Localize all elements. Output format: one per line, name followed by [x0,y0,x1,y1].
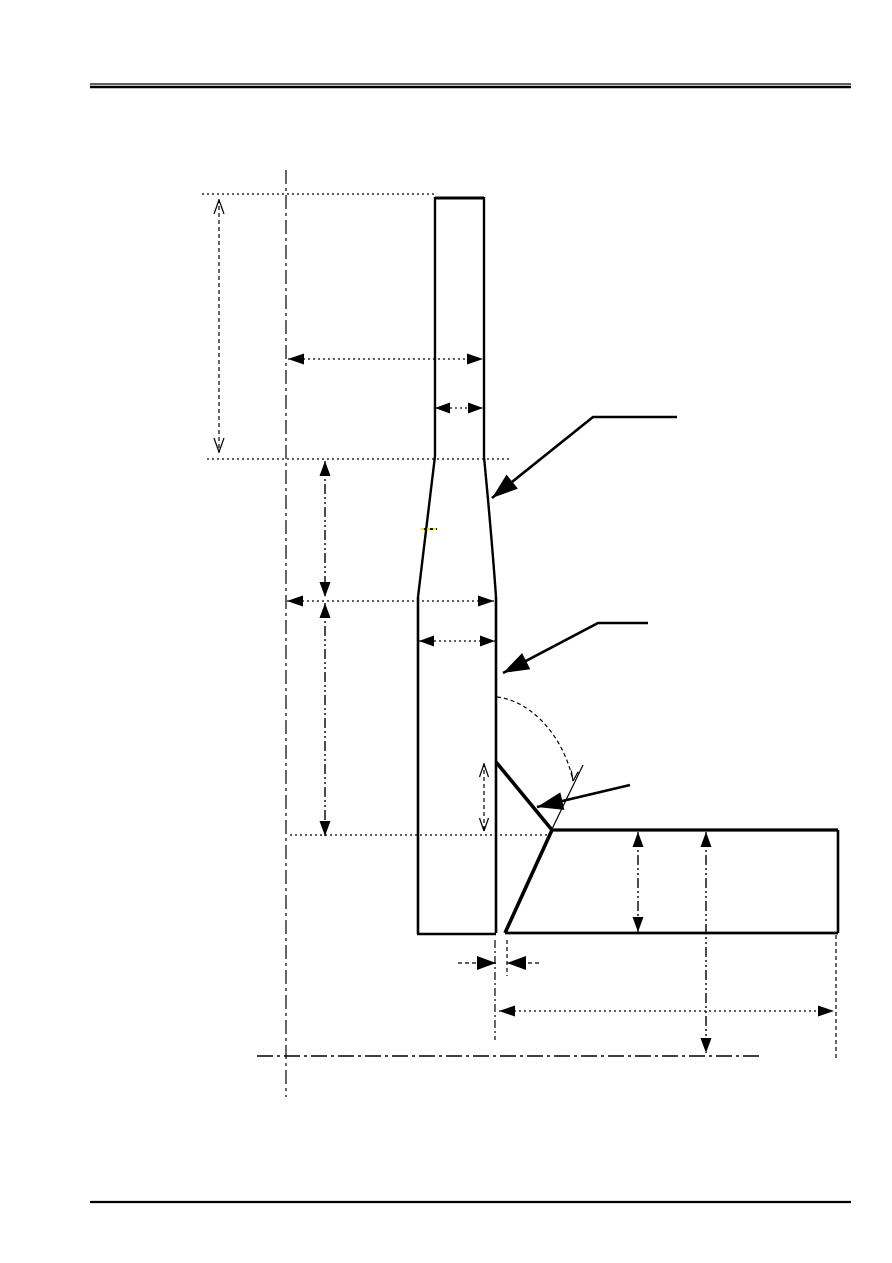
dim-tip-section-length-arrowhead [219,200,224,214]
dim-plate-thickness-arrowhead [633,917,644,932]
dim-plate-length-arrowhead [818,1006,834,1017]
dim-plate-top-to-datum-arrowhead [701,1038,712,1053]
dim-taper-section-length-arrowhead [320,461,331,476]
dim-lower-section-length-arrowhead [320,603,331,618]
dim-tip-width-arrowhead [435,403,450,414]
dim-root-face-height-arrowhead [480,764,485,777]
dim-root-face-height-arrowhead [484,764,489,777]
plate-end-bevel [505,830,552,933]
groove-angle-arc-arrowhead [571,771,573,781]
technical-drawing [0,0,892,1263]
dimension-lines [214,199,834,1053]
dim-lower-section-width-arrowhead [480,636,495,647]
dim-lower-section-length-arrowhead [320,821,331,836]
callout-taper-region [492,417,677,498]
dim-tip-section-length-arrowhead [214,438,219,452]
callout-arrows [492,417,677,810]
dim-plate-length-arrowhead [499,1006,515,1017]
dim-tip-section-length-arrowhead [214,200,219,214]
dim-centerline-to-tip-edge-arrowhead [467,354,483,365]
dim-tip-section-length-arrowhead [219,438,224,452]
dim-centerline-to-lower-edge-arrowhead [478,596,494,607]
reference-lines [202,170,836,1097]
dim-plate-thickness-arrowhead [633,832,644,847]
callout-bevel-face-arrowhead [537,792,564,810]
header-rule [90,84,851,87]
stem-left-taper [418,456,435,597]
callout-lower-section-arrowhead [503,653,530,673]
callout-taper-region-arrowhead [492,475,518,498]
dim-root-face-height-arrowhead [480,818,485,831]
dim-centerline-to-tip-edge-arrowhead [288,354,304,365]
stem-bevel-face [496,762,552,830]
stem-right-taper [484,457,496,597]
dim-plate-top-to-datum-arrowhead [701,832,712,847]
dim-tip-width-arrowhead [468,403,483,414]
document-page [0,0,892,1263]
dim-lower-section-width-arrowhead [419,636,434,647]
dim-root-gap-arrowhead [477,956,496,970]
dim-taper-section-length-arrowhead [320,582,331,597]
dim-centerline-to-lower-edge-arrowhead [287,596,303,607]
groove-angle-arc [497,697,578,781]
part-outlines [417,197,838,934]
groove-angle-arc [497,697,573,781]
dim-root-gap-arrowhead [507,956,526,970]
dim-root-face-height-arrowhead [484,818,489,831]
